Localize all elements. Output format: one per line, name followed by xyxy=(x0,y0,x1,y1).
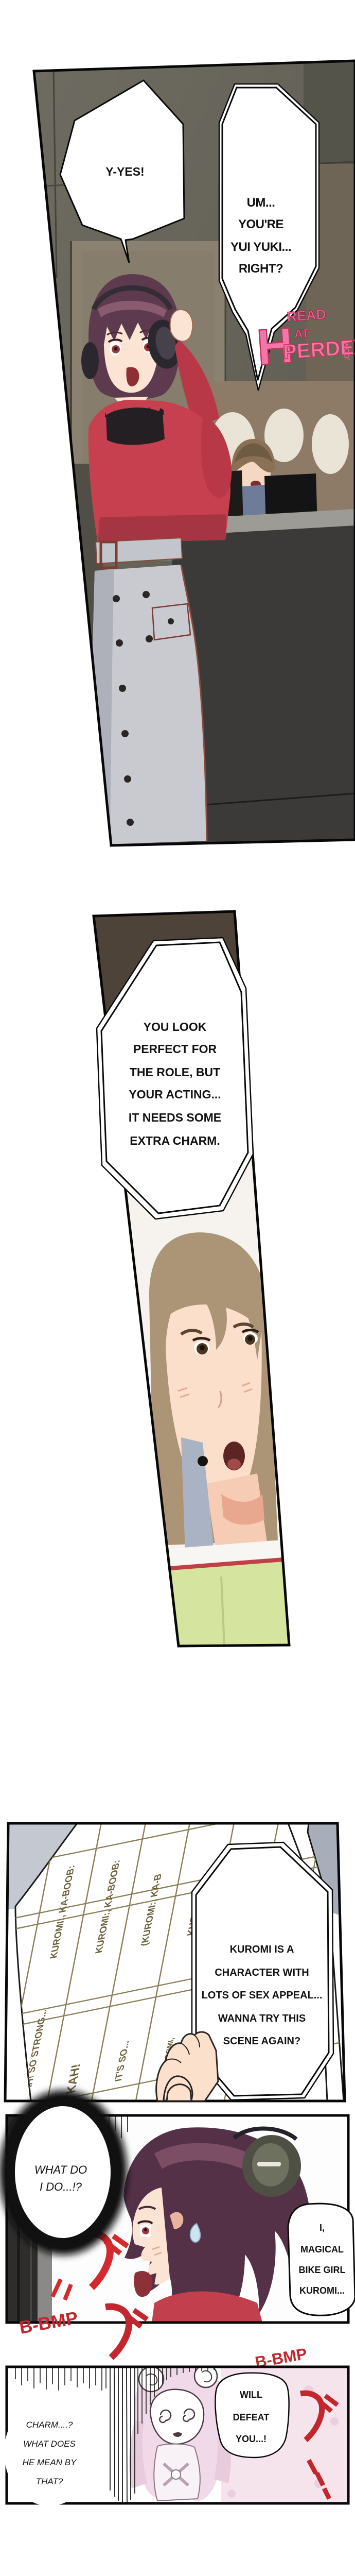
svg-text:WHAT DOES: WHAT DOES xyxy=(23,2439,76,2449)
svg-text:KUROMI IS A: KUROMI IS A xyxy=(230,1944,294,1955)
svg-text:I DO...!?: I DO...!? xyxy=(40,2180,82,2193)
svg-text:Y-YES!: Y-YES! xyxy=(105,165,144,178)
svg-text:HE MEAN BY: HE MEAN BY xyxy=(23,2458,78,2467)
svg-text:YUI YUKI...: YUI YUKI... xyxy=(230,240,291,254)
svg-text:YOU'RE: YOU'RE xyxy=(238,217,284,231)
svg-text:WHAT DO: WHAT DO xyxy=(34,2163,87,2176)
svg-text:MAGICAL: MAGICAL xyxy=(300,2244,344,2255)
svg-text:CHARM....?: CHARM....? xyxy=(26,2420,73,2430)
svg-text:YOU...!: YOU...! xyxy=(236,2434,267,2444)
svg-text:CHARACTER WITH: CHARACTER WITH xyxy=(215,1967,309,1978)
svg-text:WANNA TRY THIS: WANNA TRY THIS xyxy=(218,2013,306,2024)
svg-text:RIGHT?: RIGHT? xyxy=(239,262,283,276)
svg-text:YOUR ACTING...: YOUR ACTING... xyxy=(129,1088,221,1101)
svg-text:SCENE AGAIN?: SCENE AGAIN? xyxy=(223,2036,300,2047)
svg-text:READ: READ xyxy=(286,307,326,325)
svg-text:KUROMI...: KUROMI... xyxy=(299,2285,345,2296)
svg-text:AT: AT xyxy=(294,326,310,341)
svg-text:PERFECT FOR: PERFECT FOR xyxy=(133,1042,217,1056)
svg-text:IT NEEDS SOME: IT NEEDS SOME xyxy=(129,1111,221,1124)
svg-text:B-BMP: B-BMP xyxy=(18,2308,80,2338)
svg-text:THE ROLE, BUT: THE ROLE, BUT xyxy=(130,1065,220,1079)
svg-text:DEFEAT: DEFEAT xyxy=(233,2412,270,2422)
svg-text:LOTS OF SEX APPEAL...: LOTS OF SEX APPEAL... xyxy=(202,1990,323,2001)
svg-text:BIKE GIRL: BIKE GIRL xyxy=(298,2265,345,2275)
svg-text:I,: I, xyxy=(319,2223,325,2233)
svg-text:.COM: .COM xyxy=(342,342,351,361)
svg-text:EXTRA CHARM.: EXTRA CHARM. xyxy=(130,1134,220,1147)
svg-text:UM...: UM... xyxy=(247,196,275,210)
svg-text:THAT?: THAT? xyxy=(36,2477,63,2486)
svg-text:YOU LOOK: YOU LOOK xyxy=(144,1020,207,1033)
svg-text:WILL: WILL xyxy=(240,2389,262,2400)
